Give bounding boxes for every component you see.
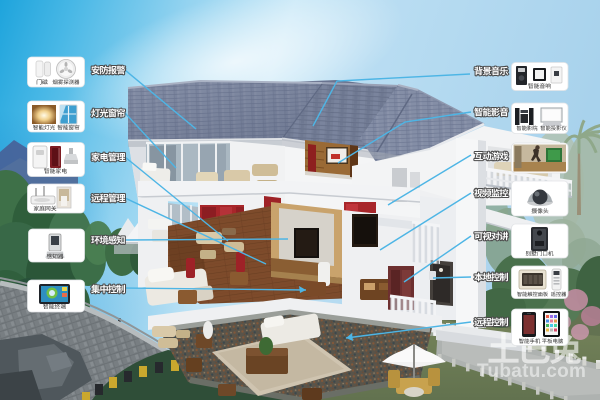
svg-text:Tubatu.com: Tubatu.com — [477, 361, 586, 382]
